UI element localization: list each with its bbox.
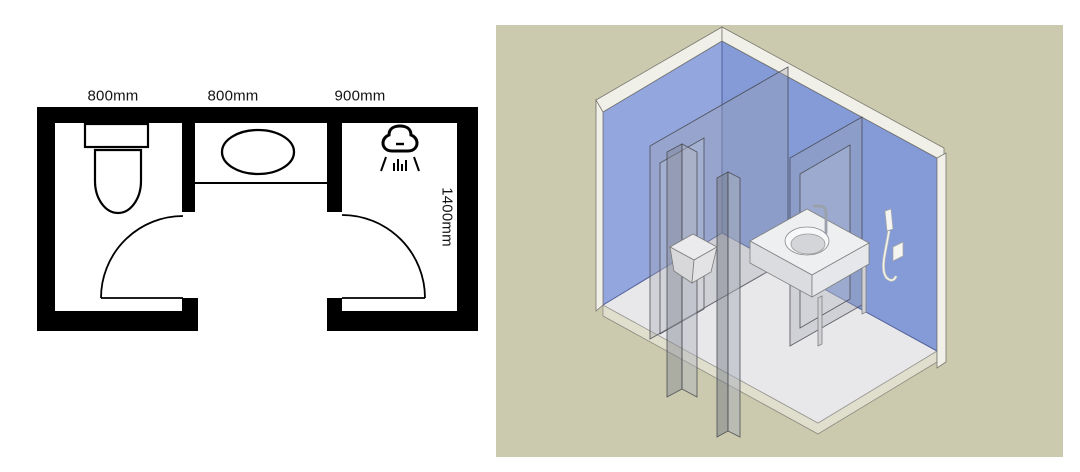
basin-bowl — [791, 234, 825, 254]
floor-plan — [37, 107, 478, 331]
dimension-label-shower-width: 900mm — [334, 88, 385, 105]
toilet-tank — [85, 124, 148, 147]
dimension-label-sink-width: 800mm — [207, 88, 258, 105]
wall-left — [37, 107, 55, 331]
wall-divider-right — [327, 123, 342, 212]
screenshot-root: { "page": { "background": "#ffffff" }, "… — [0, 0, 1080, 472]
vanity-leg-right — [862, 264, 866, 314]
dimension-label-toilet-width: 800mm — [87, 88, 138, 105]
wall-stub-left — [182, 298, 198, 314]
wall-top — [37, 107, 478, 123]
dimension-label-room-depth: 1400mm — [439, 187, 456, 247]
door-swing-right — [342, 215, 425, 298]
wall-right — [457, 107, 478, 331]
vanity-leg-left — [818, 296, 822, 346]
sink-symbol — [195, 130, 327, 183]
stub-column-2-dark-face — [717, 172, 728, 437]
shower-head-outline — [383, 126, 417, 151]
sink-oval — [222, 130, 294, 174]
wall-bottom-left — [37, 311, 198, 331]
stub-column-2-light-face — [728, 172, 740, 437]
drawing-canvas — [0, 0, 1080, 472]
shower-spray — [381, 157, 419, 171]
toilet-bowl — [95, 150, 141, 213]
wall-stub-right — [327, 298, 342, 314]
shower-head-icon — [381, 126, 419, 171]
wall-bottom-right — [327, 311, 478, 331]
door-swing-left — [101, 216, 183, 298]
iso-view — [496, 25, 1063, 457]
toilet-symbol — [85, 124, 148, 213]
trim-left-end — [596, 100, 603, 311]
wall-divider-left — [182, 123, 195, 212]
trim-right-end — [937, 153, 946, 368]
